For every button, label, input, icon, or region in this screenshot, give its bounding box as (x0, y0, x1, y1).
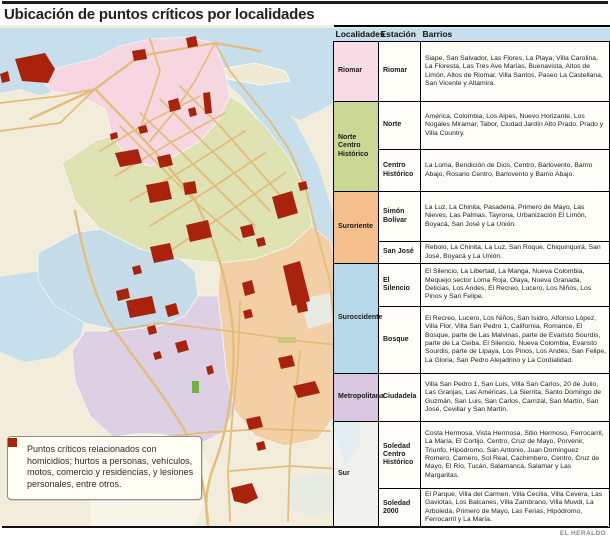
estacion-riomar: Riomar (379, 42, 421, 102)
page-title: Ubicación de puntos críticos por localid… (4, 6, 314, 23)
localidad-riomar: Riomar (334, 42, 379, 102)
table-row: Suroriente Simón Bolívar La Luz, La Chin… (334, 192, 610, 242)
barrios-simon-bolivar: La Luz, La Chinita, Pasadena, Primero de… (421, 192, 610, 242)
credit-label: EL HERALDO (560, 530, 606, 537)
estacion-simon-bolivar: Simón Bolívar (379, 192, 421, 242)
table-row: Norte Centro Histórico Norte América, Co… (334, 102, 610, 150)
critical-point-marker-icon (8, 438, 17, 447)
barrios-centro-historico: La Loma, Bendición de Dios, Centro, Barl… (421, 150, 610, 192)
header-estacion: Estación (379, 26, 421, 42)
barrios-bosque: El Recreo, Lucero, Los Niños, San Isidro… (421, 307, 610, 374)
estacion-san-jose: San José (379, 242, 421, 264)
header-localidades: Localidades (334, 26, 379, 42)
estacion-soledad-2000: Soledad 2000 (379, 489, 421, 528)
barrios-ciudadela: Villa San Pedro 1, San Luis, Villa San C… (421, 374, 610, 422)
barrios-san-jose: Rebolo, La Chinita, La Luz, San Roque, C… (421, 242, 610, 264)
estacion-norte: Norte (379, 102, 421, 150)
localidad-suroccidente: Suroccidente (334, 264, 379, 374)
table-row: Sur Soledad Centro Histórico Costa Hermo… (334, 422, 610, 489)
estacion-el-silencio: El Silencio (379, 264, 421, 307)
infographic-page: Ubicación de puntos críticos por localid… (0, 0, 610, 543)
barrios-riomar: Siape, San Salvador, Las Flores, La Play… (421, 42, 610, 102)
table-row: Riomar Riomar Siape, San Salvador, Las F… (334, 42, 610, 102)
localidad-suroriente: Suroriente (334, 192, 379, 264)
estacion-soledad-centro-historico: Soledad Centro Histórico (379, 422, 421, 489)
localidad-norte-centro-historico: Norte Centro Histórico (334, 102, 379, 192)
barrios-soledad-2000: El Parque, Villa del Carmen, Villa Cecil… (421, 489, 610, 528)
localidad-sur: Sur (334, 422, 379, 528)
table-header-row: Localidades Estación Barrios (334, 26, 610, 42)
barrios-norte: América, Colombia, Los Alpes, Nuevo Hori… (421, 102, 610, 150)
table-row: Suroccidente El Silencio El Silencio, La… (334, 264, 610, 307)
estacion-bosque: Bosque (379, 307, 421, 374)
localities-table: Localidades Estación Barrios Riomar Riom… (333, 25, 610, 528)
legend-text: Puntos críticos relacionados con homicid… (15, 444, 195, 491)
barrios-el-silencio: El Silencio, La Libertad, La Manga, Nuev… (421, 264, 610, 307)
header-barrios: Barrios (421, 26, 610, 42)
map-legend: Puntos críticos relacionados con homicid… (7, 436, 202, 500)
estacion-ciudadela: Ciudadela (379, 374, 421, 422)
table-row: Metropolitana Ciudadela Villa San Pedro … (334, 374, 610, 422)
localidad-metropolitana: Metropolitana (334, 374, 379, 422)
barrios-soledad-centro-historico: Costa Hermosa, Vista Hermosa, Sitio Herm… (421, 422, 610, 489)
top-rule (2, 1, 608, 4)
bottom-rule (2, 526, 608, 528)
estacion-centro-historico: Centro Histórico (379, 150, 421, 192)
